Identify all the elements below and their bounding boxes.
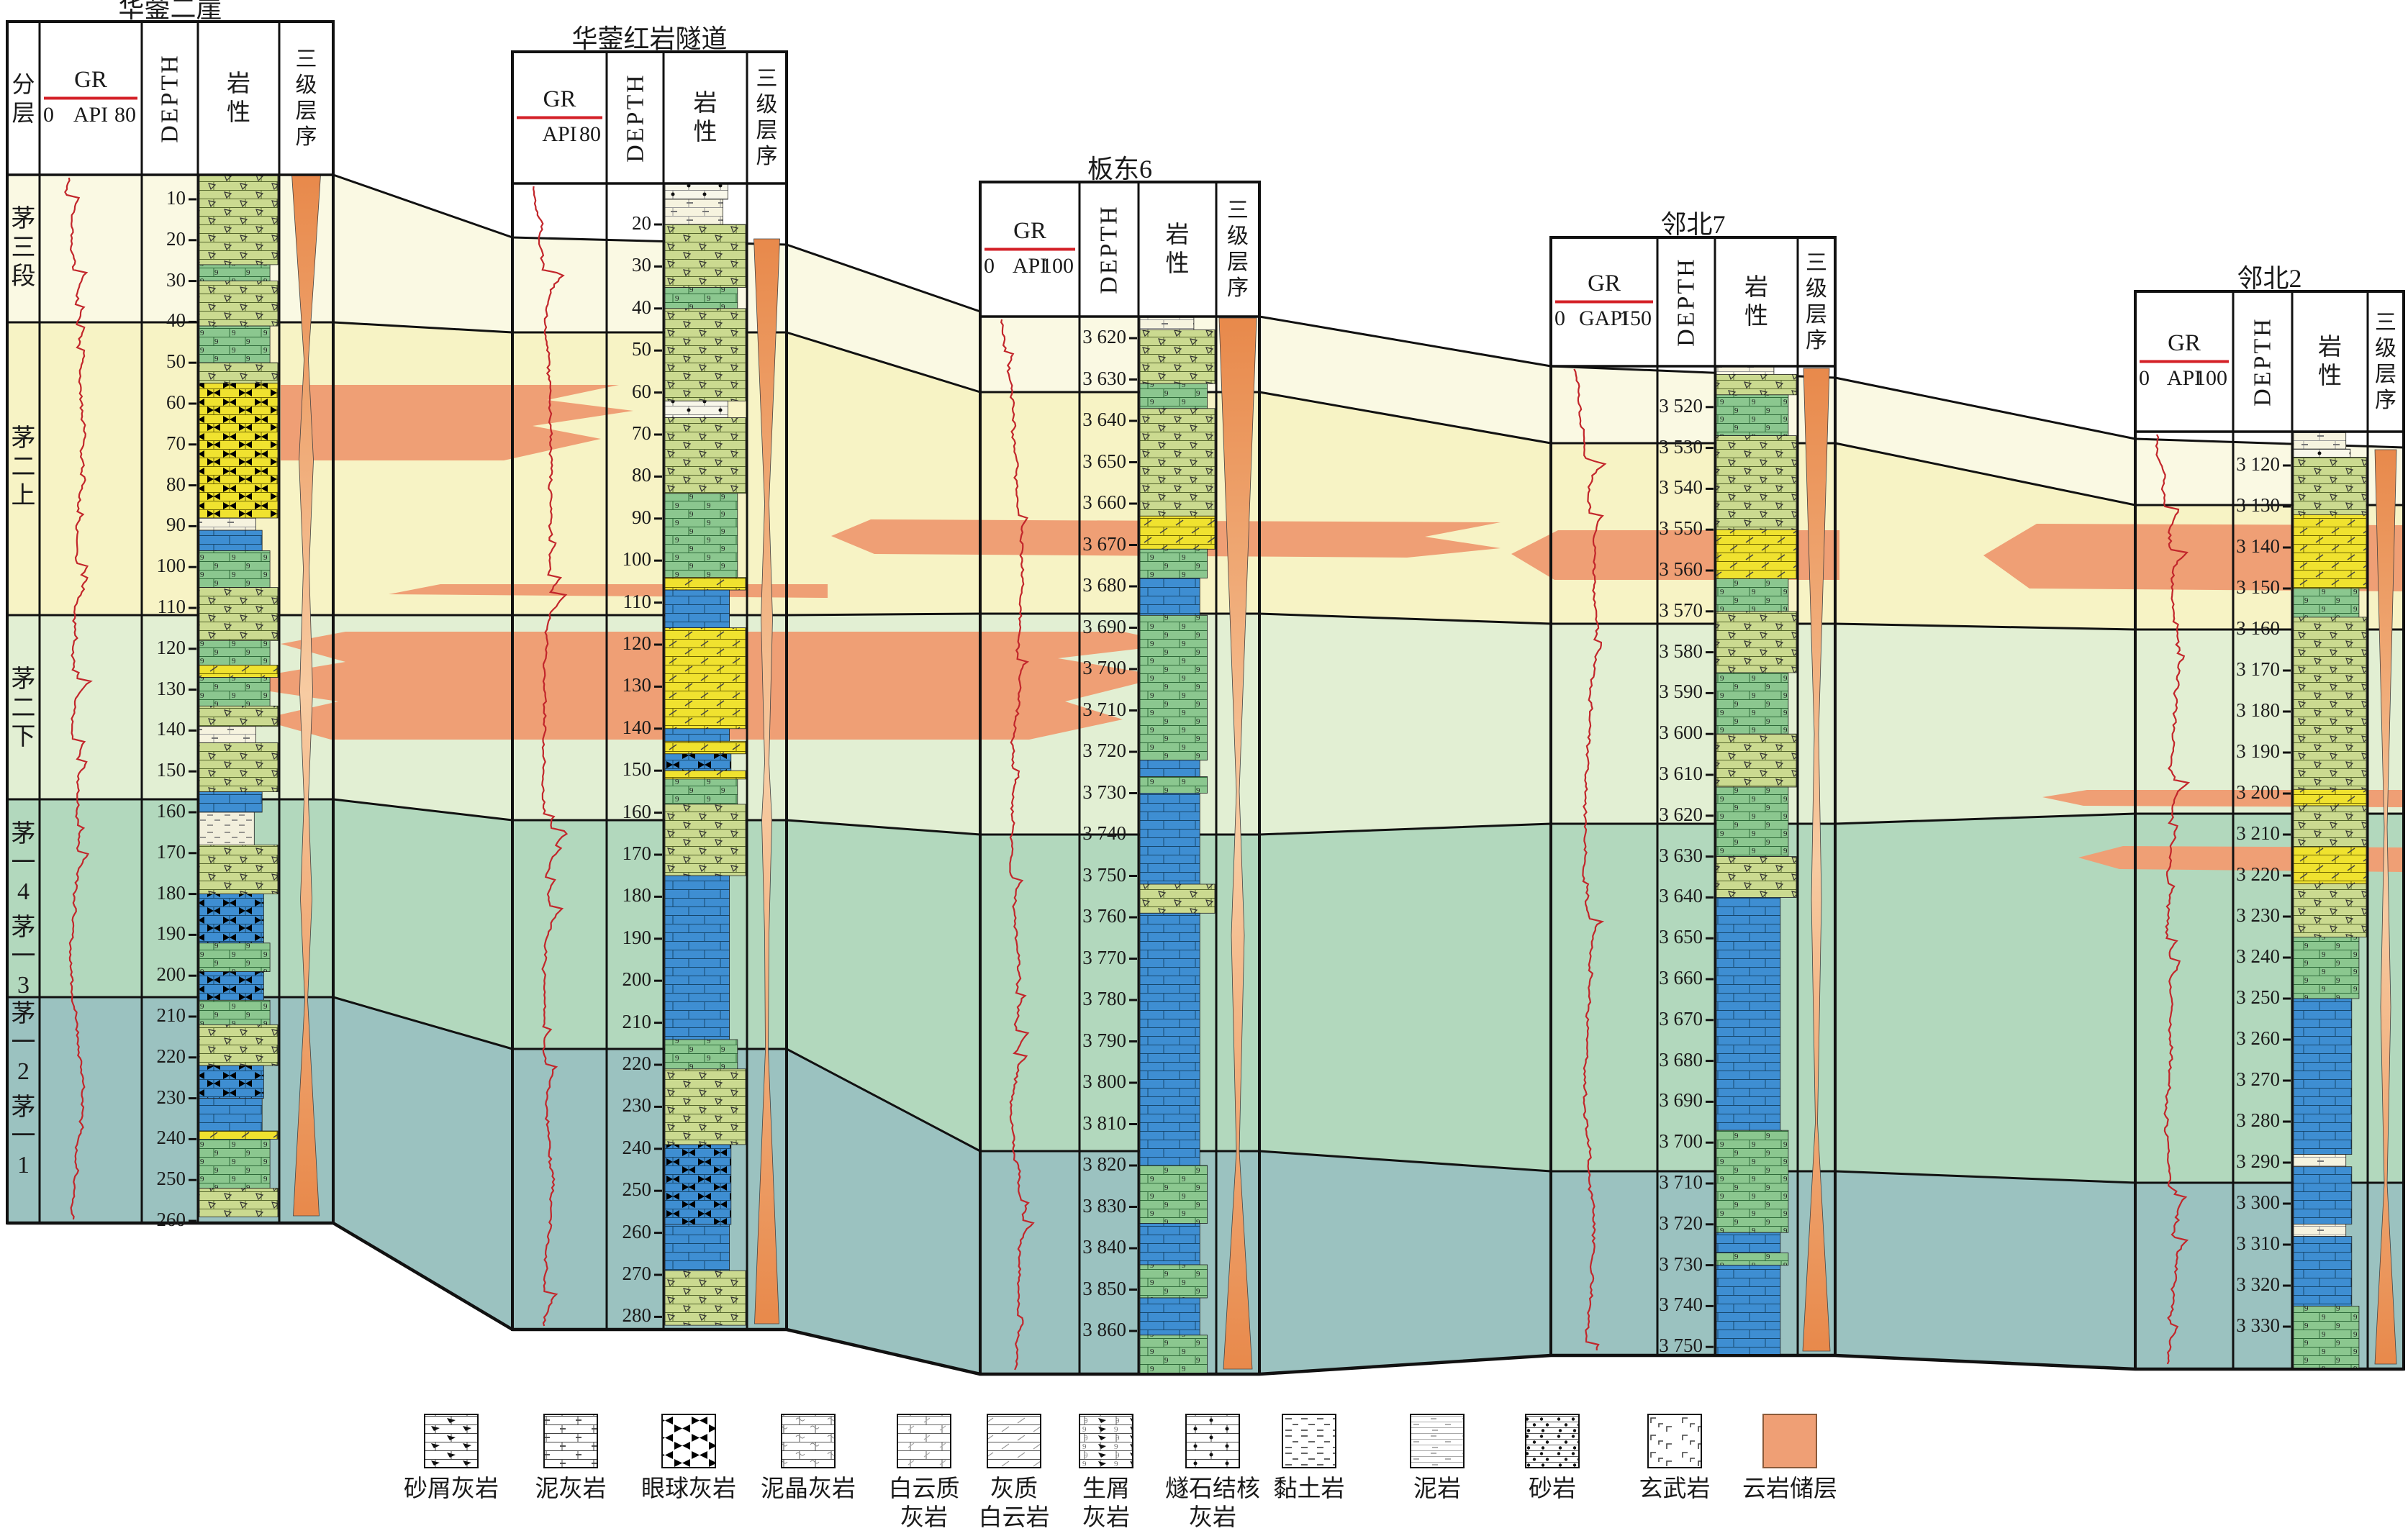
depth-tick-label: 210	[607, 1011, 651, 1033]
legend-label: 砂岩	[1493, 1475, 1611, 1504]
seq-header: 三级层序	[294, 47, 319, 150]
depth-tick-label: 3 190	[2234, 740, 2280, 763]
lith-segment	[1140, 884, 1215, 913]
lith-segment	[199, 792, 262, 812]
lith-segment	[199, 383, 278, 518]
lith-segment	[1140, 330, 1215, 384]
gr-label: GR	[1551, 271, 1657, 298]
depth-tick-label: 3 620	[1080, 326, 1126, 348]
lith-segment	[1140, 1165, 1208, 1224]
depth-tick-label: 40	[607, 296, 651, 319]
lith-header: 岩性	[692, 89, 718, 147]
depth-tick-label: 3 690	[1080, 616, 1126, 638]
legend-swatch-marl	[544, 1414, 597, 1468]
lith-segment	[2294, 1155, 2346, 1167]
lith-segment	[199, 812, 254, 845]
depth-tick-label: 200	[607, 968, 651, 991]
lith-segment	[1716, 395, 1788, 436]
depth-tick-label: 230	[142, 1086, 186, 1109]
depth-tick-label: 3 180	[2234, 699, 2280, 722]
gr-label: GR	[980, 218, 1079, 245]
legend-swatch-clay	[1282, 1414, 1336, 1468]
lith-segment	[199, 1139, 270, 1188]
well-title: 邻北7	[1551, 210, 1835, 240]
depth-tick-label: 3 230	[2234, 904, 2280, 927]
depth-tick-label: 190	[142, 922, 186, 945]
seq-header: 三级层序	[2373, 310, 2398, 414]
gr-scale-max: 80	[512, 122, 601, 147]
depth-tick-label: 3 820	[1080, 1153, 1126, 1176]
depth-tick-label: 260	[142, 1209, 186, 1231]
depth-tick-label: 130	[142, 678, 186, 700]
well-title: 华蓥红岩隧道	[512, 24, 787, 54]
legend-swatch-dololime	[897, 1414, 951, 1468]
depth-tick-label: 3 730	[1658, 1253, 1703, 1276]
lith-segment	[1716, 374, 1796, 394]
depth-tick-label: 250	[142, 1168, 186, 1190]
depth-tick-label: 3 250	[2234, 986, 2280, 1009]
depth-tick-label: 3 650	[1080, 450, 1126, 473]
lith-segment	[665, 183, 728, 199]
lith-segment	[665, 771, 746, 779]
depth-tick-label: 3 630	[1080, 368, 1126, 390]
depth-tick-label: 3 170	[2234, 658, 2280, 681]
depth-tick-label: 3 560	[1658, 558, 1703, 581]
lith-segment	[1140, 913, 1200, 1165]
lith-segment	[665, 804, 746, 876]
lith-segment	[2294, 514, 2366, 589]
depth-tick-label: 3 830	[1080, 1195, 1126, 1217]
legend-swatch-sandclast	[425, 1414, 478, 1468]
lith-segment	[2294, 1306, 2359, 1370]
depth-tick-label: 10	[142, 187, 186, 209]
depth-tick-label: 190	[607, 927, 651, 949]
lith-segment	[665, 1069, 746, 1145]
depth-tick-label: 3 780	[1080, 988, 1126, 1010]
gr-scale-max: 100	[2135, 366, 2227, 391]
legend-swatch-basalt	[1648, 1414, 1701, 1468]
depth-tick-label: 3 120	[2234, 453, 2280, 476]
depth-header: DEPTH	[2248, 296, 2276, 426]
lith-segment	[2294, 937, 2359, 999]
depth-tick-label: 170	[142, 841, 186, 863]
depth-tick-label: 3 720	[1658, 1212, 1703, 1235]
depth-tick-label: 280	[607, 1304, 651, 1327]
legend-swatch-micrite	[782, 1414, 835, 1468]
lith-segment	[199, 265, 270, 281]
lith-segment	[1716, 734, 1796, 787]
lith-segment	[1140, 760, 1200, 777]
lith-segment	[199, 1024, 278, 1065]
lith-segment	[199, 1099, 262, 1131]
lith-segment	[1140, 615, 1208, 760]
lith-segment	[665, 754, 731, 771]
well-title: 华蓥二崖	[7, 0, 333, 24]
depth-tick-label: 90	[142, 514, 186, 536]
lith-segment	[665, 1145, 731, 1224]
lith-segment	[2294, 589, 2359, 617]
legend-swatch-reservoir	[1763, 1414, 1816, 1468]
lith-segment	[665, 741, 746, 754]
depth-tick-label: 90	[607, 506, 651, 529]
fenceng-zone-label: 茅一2	[9, 1000, 38, 1086]
lith-segment	[1140, 1265, 1208, 1298]
depth-tick-label: 3 680	[1658, 1049, 1703, 1071]
legend-label: 玄武岩	[1616, 1475, 1734, 1504]
lith-segment	[199, 845, 278, 894]
depth-tick-label: 180	[607, 884, 651, 906]
depth-tick-label: 3 700	[1080, 657, 1126, 679]
depth-tick-label: 3 740	[1080, 822, 1126, 845]
depth-tick-label: 220	[142, 1045, 186, 1068]
depth-tick-label: 3 740	[1658, 1294, 1703, 1316]
stratigraphic-correlation-figure: 99 99 华蓥二崖分层茅三段茅二上茅	[0, 0, 2408, 1536]
legend-swatch-eyeball	[662, 1414, 715, 1468]
depth-tick-label: 270	[607, 1263, 651, 1285]
seq-header: 三级层序	[1226, 198, 1250, 301]
depth-tick-label: 60	[142, 391, 186, 414]
lith-segment	[199, 706, 278, 726]
depth-tick-label: 3 730	[1080, 781, 1126, 804]
depth-tick-label: 150	[142, 759, 186, 781]
depth-tick-label: 3 200	[2234, 781, 2280, 804]
depth-tick-label: 3 220	[2234, 863, 2280, 886]
depth-tick-label: 240	[142, 1127, 186, 1149]
lith-segment	[1140, 383, 1208, 409]
depth-tick-label: 80	[607, 464, 651, 486]
legend-label: 生屑 灰岩	[1047, 1475, 1165, 1532]
depth-tick-label: 3 210	[2234, 822, 2280, 845]
lith-segment	[665, 1040, 738, 1069]
depth-tick-label: 3 240	[2234, 945, 2280, 968]
legend-swatch-chert	[1186, 1414, 1239, 1468]
depth-tick-label: 60	[607, 381, 651, 403]
lith-segment	[1716, 1253, 1788, 1265]
depth-tick-label: 3 320	[2234, 1273, 2280, 1296]
lith-segment	[1716, 578, 1788, 611]
lith-segment	[199, 1065, 263, 1098]
lith-segment	[2294, 883, 2366, 937]
lith-segment	[2294, 449, 2350, 457]
depth-tick-label: 3 670	[1080, 533, 1126, 555]
depth-tick-label: 260	[607, 1221, 651, 1243]
depth-tick-label: 80	[142, 473, 186, 496]
seq-header: 三级层序	[755, 66, 779, 170]
depth-tick-label: 3 660	[1658, 967, 1703, 989]
lith-segment	[199, 1189, 278, 1217]
lith-header: 岩性	[1164, 221, 1190, 278]
lith-segment	[665, 590, 730, 628]
depth-tick-label: 3 150	[2234, 576, 2280, 599]
depth-tick-label: 250	[607, 1178, 651, 1201]
depth-tick-label: 3 700	[1658, 1130, 1703, 1153]
legend-label: 泥灰岩	[512, 1475, 630, 1504]
lith-segment	[2294, 617, 2366, 789]
lith-segment	[665, 578, 746, 591]
fenceng-zone-label: 茅二下	[9, 665, 38, 752]
lith-segment	[199, 894, 263, 943]
lith-segment	[1140, 516, 1215, 549]
depth-tick-label: 3 310	[2234, 1232, 2280, 1255]
legend-label: 砂屑灰岩	[392, 1475, 510, 1504]
depth-tick-label: 3 550	[1658, 517, 1703, 540]
fenceng-zone-label: 茅一3	[9, 914, 38, 1000]
lith-segment	[665, 288, 738, 309]
lith-header: 岩性	[2317, 333, 2343, 391]
depth-tick-label: 3 160	[2234, 617, 2280, 640]
lith-segment	[665, 628, 746, 729]
gr-scale-max: 100	[980, 254, 1074, 279]
depth-tick-label: 110	[142, 596, 186, 618]
depth-tick-label: 3 660	[1080, 491, 1126, 514]
lith-segment	[1140, 1298, 1200, 1335]
lith-segment	[665, 401, 728, 417]
depth-tick-label: 50	[142, 350, 186, 373]
depth-tick-label: 70	[142, 432, 186, 455]
depth-tick-label: 3 810	[1080, 1112, 1126, 1135]
depth-tick-label: 3 720	[1080, 740, 1126, 762]
lith-segment	[2294, 806, 2366, 847]
depth-tick-label: 3 610	[1658, 763, 1703, 785]
depth-tick-label: 3 710	[1658, 1171, 1703, 1194]
lith-segment	[2294, 789, 2366, 806]
depth-tick-label: 30	[142, 269, 186, 291]
lith-segment	[199, 363, 278, 383]
lith-segment	[1140, 1224, 1200, 1265]
lith-segment	[199, 640, 270, 665]
seq-header: 三级层序	[1804, 250, 1829, 354]
lith-segment	[2294, 1224, 2346, 1237]
lith-segment	[1140, 317, 1194, 330]
lith-segment	[1716, 436, 1796, 530]
depth-tick-label: 200	[142, 963, 186, 986]
lith-segment	[2294, 1237, 2352, 1306]
gr-label: GR	[512, 86, 607, 114]
depth-header: DEPTH	[1672, 237, 1700, 366]
lith-segment	[1140, 549, 1208, 578]
depth-tick-label: 160	[607, 801, 651, 823]
lith-segment	[2294, 432, 2346, 449]
lith-segment	[1716, 673, 1788, 734]
depth-tick-label: 110	[607, 591, 651, 613]
fenceng-header: 分层	[11, 70, 37, 127]
lith-segment	[199, 742, 278, 791]
lith-segment	[199, 530, 262, 550]
lith-segment	[1140, 1335, 1208, 1374]
depth-header: DEPTH	[621, 53, 649, 182]
lith-segment	[665, 729, 730, 742]
lith-segment	[1716, 530, 1796, 578]
gr-scale-max: 80	[40, 103, 136, 128]
legend-label: 泥晶灰岩	[749, 1475, 867, 1504]
lith-segment	[665, 199, 723, 224]
depth-tick-label: 3 280	[2234, 1109, 2280, 1132]
depth-tick-label: 3 640	[1080, 409, 1126, 431]
lith-segment	[1716, 1232, 1780, 1253]
lith-segment	[665, 224, 746, 288]
fenceng-zone-label: 茅一1	[9, 1094, 38, 1180]
depth-tick-label: 140	[607, 717, 651, 739]
depth-tick-label: 3 760	[1080, 905, 1126, 927]
depth-tick-label: 3 270	[2234, 1068, 2280, 1091]
legend-label: 黏土岩	[1250, 1475, 1368, 1504]
lith-segment	[199, 943, 270, 972]
gr-label: GR	[40, 67, 142, 94]
legend-swatch-mud	[1411, 1414, 1464, 1468]
depth-tick-label: 3 850	[1080, 1278, 1126, 1300]
depth-tick-label: 3 690	[1658, 1089, 1703, 1112]
lith-segment	[1140, 578, 1200, 616]
depth-tick-label: 3 840	[1080, 1236, 1126, 1258]
lith-segment	[1716, 1265, 1780, 1355]
fenceng-zone-label: 茅三段	[9, 205, 38, 291]
lith-segment	[199, 551, 270, 588]
lith-segment	[2294, 999, 2352, 1155]
depth-tick-label: 3 790	[1080, 1030, 1126, 1052]
depth-tick-label: 170	[607, 842, 651, 865]
depth-tick-label: 3 530	[1658, 436, 1703, 458]
depth-tick-label: 220	[607, 1053, 651, 1075]
depth-tick-label: 3 520	[1658, 395, 1703, 417]
depth-tick-label: 130	[607, 674, 651, 696]
depth-tick-label: 150	[607, 758, 651, 781]
lith-segment	[1716, 857, 1796, 898]
lith-segment	[665, 418, 746, 494]
depth-tick-label: 100	[607, 548, 651, 571]
gr-scale-max: 150	[1551, 306, 1652, 332]
well-title: 板东6	[980, 155, 1259, 184]
depth-tick-label: 3 670	[1658, 1008, 1703, 1030]
lith-segment	[1140, 409, 1215, 517]
lith-segment	[665, 1224, 730, 1271]
depth-tick-label: 3 640	[1658, 885, 1703, 907]
lith-segment	[1140, 777, 1208, 794]
legend-swatch-sand	[1526, 1414, 1579, 1468]
depth-tick-label: 3 680	[1080, 574, 1126, 596]
depth-tick-label: 3 540	[1658, 476, 1703, 499]
lith-segment	[665, 876, 730, 1040]
lith-segment	[2294, 847, 2366, 883]
depth-tick-label: 3 860	[1080, 1319, 1126, 1341]
depth-tick-label: 3 330	[2234, 1314, 2280, 1337]
lith-segment	[199, 972, 263, 1001]
depth-header: DEPTH	[155, 33, 184, 163]
depth-tick-label: 3 630	[1658, 845, 1703, 867]
lith-segment	[665, 494, 738, 578]
depth-tick-label: 3 580	[1658, 640, 1703, 663]
lith-segment	[2294, 458, 2366, 515]
depth-tick-label: 40	[142, 309, 186, 332]
section-graphic: 99 99	[0, 0, 2408, 1536]
lith-segment	[199, 1131, 278, 1139]
lith-segment	[199, 588, 278, 641]
depth-tick-label: 3 140	[2234, 535, 2280, 558]
depth-tick-label: 3 770	[1080, 947, 1126, 969]
depth-tick-label: 230	[607, 1094, 651, 1117]
depth-tick-label: 3 570	[1658, 599, 1703, 622]
depth-tick-label: 70	[607, 422, 651, 445]
gr-label: GR	[2135, 330, 2233, 358]
legend-label: 云岩储层	[1731, 1475, 1849, 1504]
lith-segment	[199, 1000, 270, 1024]
depth-tick-label: 3 750	[1658, 1335, 1703, 1357]
lith-segment	[665, 309, 746, 401]
lith-segment	[1716, 787, 1788, 857]
depth-tick-label: 3 650	[1658, 926, 1703, 948]
lith-segment	[2294, 1167, 2352, 1224]
depth-tick-label: 240	[607, 1137, 651, 1159]
lith-header: 岩性	[226, 70, 252, 127]
lith-segment	[199, 678, 270, 706]
depth-tick-label: 100	[142, 555, 186, 577]
legend-swatch-bioclast	[1079, 1414, 1133, 1468]
depth-tick-label: 3 260	[2234, 1027, 2280, 1050]
depth-tick-label: 3 710	[1080, 699, 1126, 721]
fenceng-zone-label: 茅一4	[9, 820, 38, 906]
depth-tick-label: 20	[607, 212, 651, 235]
depth-tick-label: 20	[142, 228, 186, 250]
lith-segment	[199, 281, 278, 327]
depth-tick-label: 3 620	[1658, 804, 1703, 826]
depth-tick-label: 3 600	[1658, 722, 1703, 744]
lith-segment	[199, 727, 256, 743]
lith-segment	[199, 175, 278, 265]
depth-tick-label: 160	[142, 800, 186, 822]
depth-tick-label: 210	[142, 1004, 186, 1027]
depth-tick-label: 30	[607, 254, 651, 276]
depth-header: DEPTH	[1095, 184, 1123, 314]
lith-segment	[665, 779, 738, 804]
lith-segment	[1140, 794, 1200, 885]
depth-tick-label: 3 130	[2234, 494, 2280, 517]
legend-label: 泥岩	[1378, 1475, 1496, 1504]
legend-label: 眼球灰岩	[630, 1475, 748, 1504]
legend-swatch-limydolo	[987, 1414, 1041, 1468]
lith-segment	[199, 665, 278, 678]
lith-segment	[1716, 1130, 1788, 1232]
depth-tick-label: 120	[142, 637, 186, 659]
depth-tick-label: 3 750	[1080, 864, 1126, 886]
depth-tick-label: 3 590	[1658, 681, 1703, 703]
lith-header: 岩性	[1744, 273, 1770, 331]
lith-segment	[1716, 897, 1780, 1130]
depth-tick-label: 50	[607, 338, 651, 360]
lith-segment	[665, 1271, 746, 1325]
depth-tick-label: 120	[607, 632, 651, 655]
well-title: 邻北2	[2135, 264, 2404, 294]
lith-segment	[199, 326, 270, 363]
depth-tick-label: 140	[142, 718, 186, 740]
depth-tick-label: 180	[142, 882, 186, 904]
lith-segment	[1716, 612, 1796, 673]
depth-tick-label: 3 300	[2234, 1191, 2280, 1214]
depth-tick-label: 3 800	[1080, 1071, 1126, 1093]
depth-tick-label: 3 290	[2234, 1150, 2280, 1173]
lith-segment	[199, 518, 256, 530]
fenceng-zone-label: 茅二上	[9, 424, 38, 511]
